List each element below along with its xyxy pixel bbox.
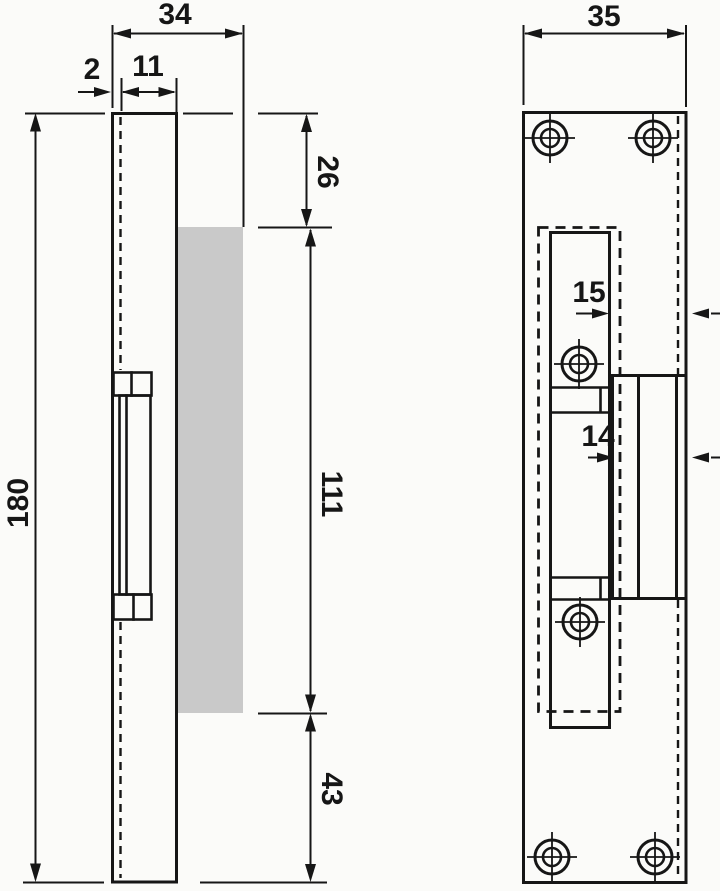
- dim-label-111: 111: [315, 471, 348, 518]
- edge-reference-arrow-lower: [692, 453, 720, 463]
- dim-label-43: 43: [315, 772, 348, 805]
- side-view: 34 2 11 180 26: [2, 0, 348, 883]
- screw-hole-bottom-right: [630, 832, 680, 882]
- dim-label-180: 180: [2, 478, 35, 528]
- dim-side-middle-section: 111: [258, 229, 348, 714]
- side-view-faceplate-outline: [113, 114, 177, 883]
- dim-side-top-section: 26: [183, 114, 344, 228]
- dim-label-2: 2: [84, 53, 101, 86]
- dim-front-upper-offset: 15: [572, 276, 609, 319]
- dim-side-box-depth: 11: [122, 50, 177, 112]
- drawing-canvas: 34 2 11 180 26: [0, 0, 720, 891]
- screw-hole-mid-upper: [554, 339, 604, 389]
- side-view-lower-latch-block: [114, 595, 152, 620]
- technical-drawing: 34 2 11 180 26: [0, 0, 720, 891]
- front-view-keeper: [613, 376, 687, 599]
- edge-reference-arrow-upper: [692, 309, 720, 319]
- dim-label-26: 26: [311, 155, 344, 188]
- screw-hole-top-right: [628, 113, 678, 163]
- front-view: 35 15 14: [524, 0, 720, 883]
- dim-label-15: 15: [572, 276, 605, 309]
- screw-hole-mid-lower: [555, 597, 605, 647]
- screw-hole-top-left: [525, 113, 575, 163]
- front-view-lower-step: [551, 578, 613, 600]
- dim-label-11: 11: [132, 50, 164, 83]
- dim-label-14: 14: [581, 420, 615, 453]
- front-view-upper-step: [551, 388, 613, 413]
- side-view-highlight-area: [178, 227, 243, 713]
- side-view-upper-latch-block: [114, 373, 152, 396]
- dim-label-34: 34: [158, 0, 192, 31]
- screw-hole-bottom-left: [527, 832, 577, 882]
- dim-front-overall-width: 35: [524, 0, 687, 107]
- dim-label-35: 35: [587, 0, 620, 33]
- dim-side-overall-height: 180: [2, 113, 105, 883]
- side-view-latch-bar: [120, 396, 151, 595]
- dim-side-bottom-section: 43: [200, 714, 348, 883]
- dim-side-plate-thickness: 2: [78, 53, 111, 97]
